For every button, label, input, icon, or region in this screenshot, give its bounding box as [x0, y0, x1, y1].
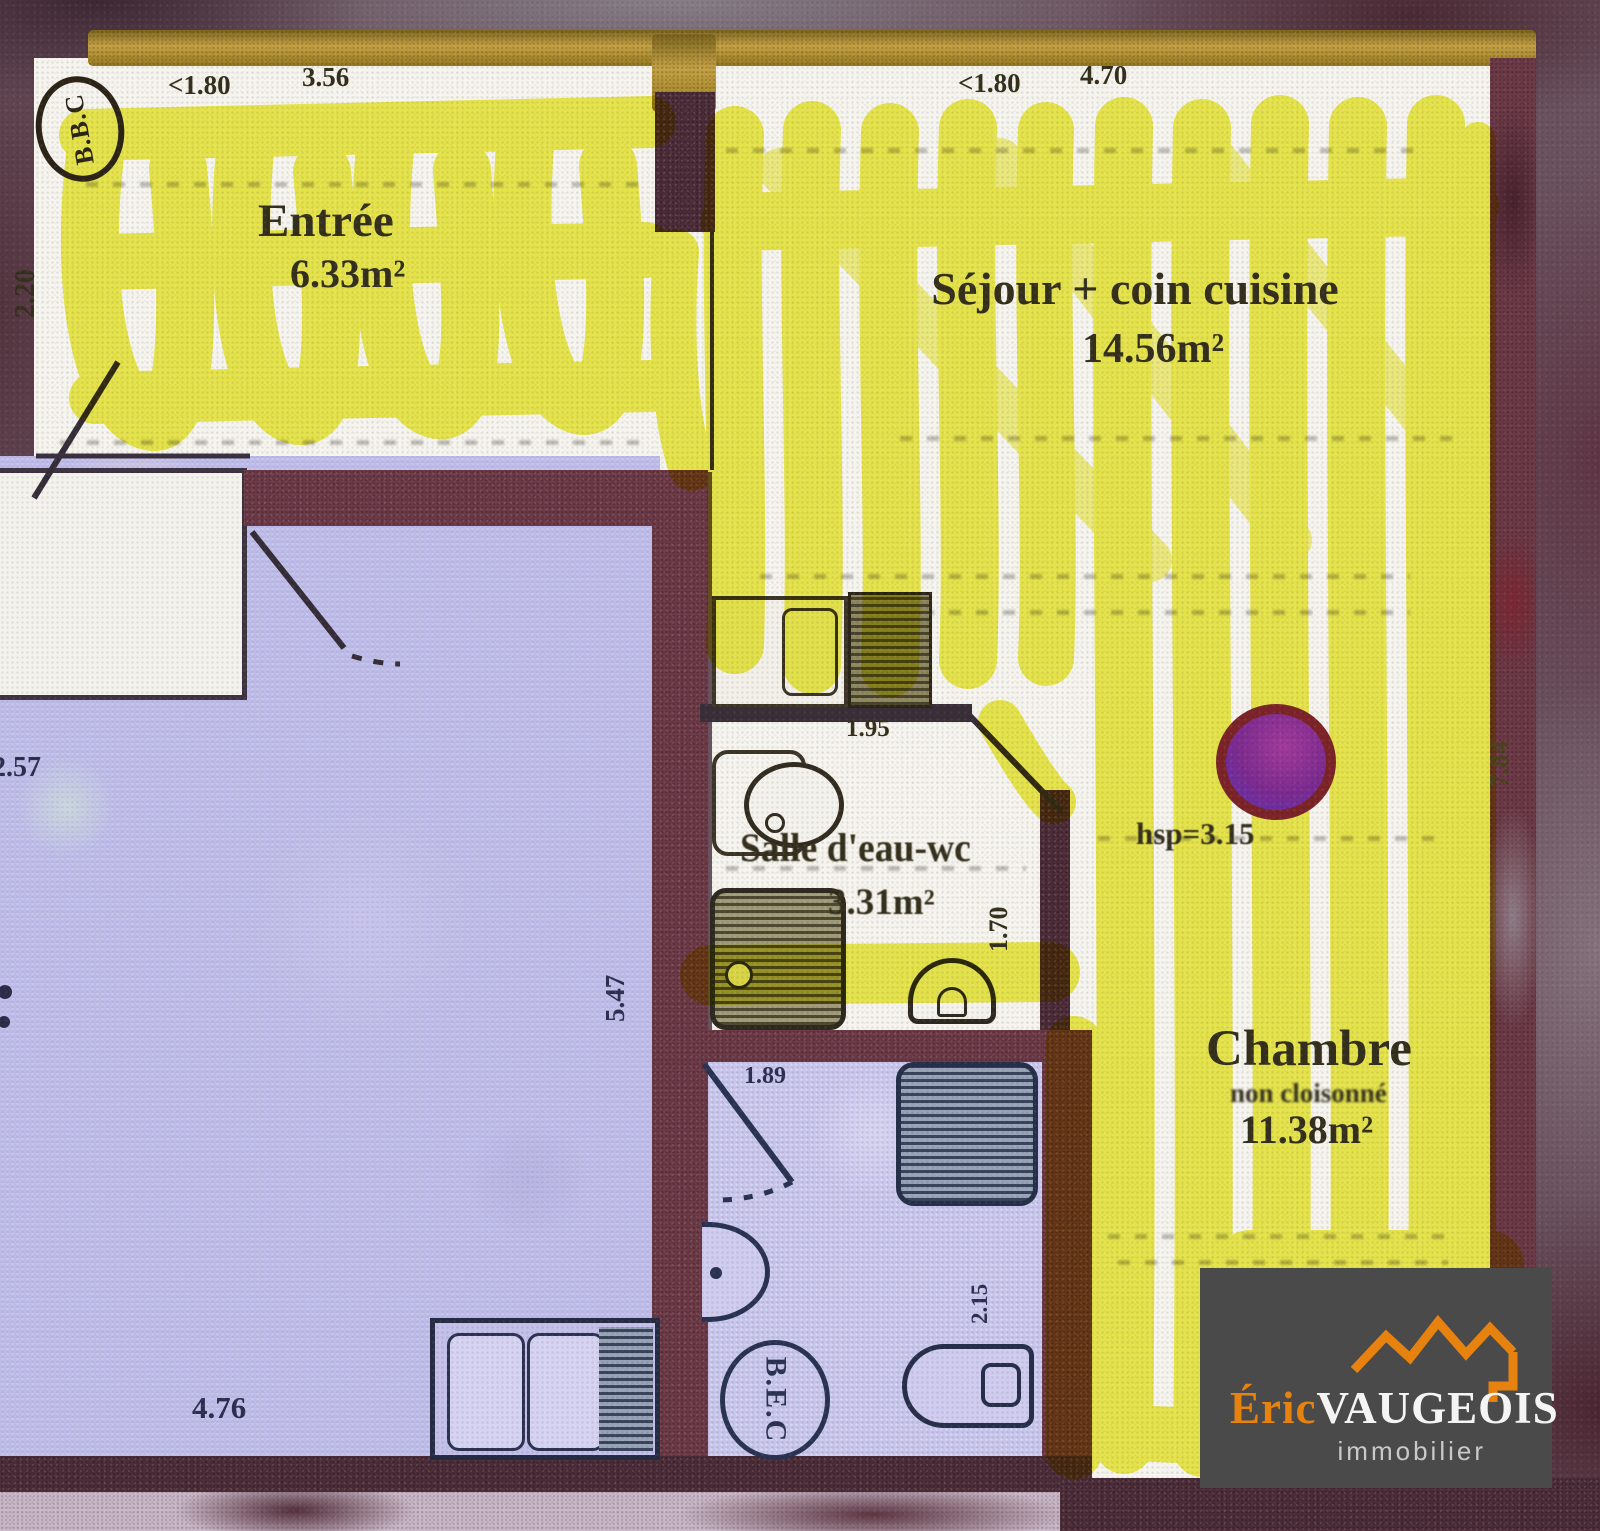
wardrobe-door-icon	[527, 1333, 605, 1451]
wall-bath2-right	[1042, 1030, 1092, 1490]
dim-salle-eau-width: 1.95	[846, 716, 890, 741]
note-chambre: non cloisonné	[1230, 1080, 1387, 1107]
bleed-row	[726, 148, 1426, 153]
area-chambre: 11.38m²	[1240, 1110, 1373, 1150]
dim-bath2-width: 1.89	[744, 1064, 786, 1088]
toilet2-tank-icon	[981, 1363, 1021, 1407]
area-salle-eau: 3.31m²	[828, 884, 935, 921]
dim-neighbor-inner: 5.47	[602, 975, 629, 1022]
kitchen-sink-unit-icon	[712, 596, 848, 708]
bleed-row	[1118, 1260, 1448, 1265]
room-neighbor-annex	[0, 468, 247, 700]
scan-bottom-strip	[0, 1490, 1092, 1531]
toilet2-icon	[902, 1344, 1034, 1428]
label-sejour: Séjour + coin cuisine	[900, 266, 1370, 312]
agency-logo: ÉricVAUGEOIS immobilier	[1200, 1268, 1552, 1488]
dim-entree-left: 2.20	[12, 269, 40, 318]
wall-entree-sejour	[655, 92, 715, 232]
label-entree: Entrée	[258, 198, 394, 245]
dim-bath2-right: 2.15	[968, 1284, 991, 1324]
label-chambre: Chambre	[1206, 1024, 1412, 1075]
agency-tagline: immobilier	[1338, 1436, 1486, 1467]
dim-sejour-door: <1.80	[958, 70, 1021, 97]
bleed-row	[1108, 1234, 1458, 1239]
agency-name-last: VAUGEOIS	[1316, 1383, 1558, 1433]
bleed-row	[900, 436, 1460, 441]
water-heater-label: B.E.C	[758, 1357, 792, 1444]
note-ceiling-height: hsp=3.15	[1136, 818, 1254, 849]
wall-bottom	[0, 1456, 1092, 1492]
kitchen-counter-icon	[848, 592, 932, 708]
shower-icon	[710, 888, 846, 1030]
dim-neighbor-left: 2.57	[0, 754, 41, 782]
label-salle-eau: Salle d'eau-wc	[740, 828, 971, 868]
dim-neighbor-bottom: 4.76	[192, 1392, 246, 1423]
agency-name: ÉricVAUGEOIS	[1230, 1382, 1559, 1434]
wall-salle-eau-right	[1040, 790, 1070, 1034]
shower2-icon	[896, 1062, 1038, 1206]
dim-sejour-width: 4.70	[1080, 62, 1127, 89]
wall-vertical-main	[652, 470, 708, 1490]
water-heater-stamp: B.E.C	[720, 1340, 830, 1460]
top-wall	[88, 30, 1536, 66]
bleed-row	[760, 574, 1410, 579]
wardrobe-icon	[430, 1318, 660, 1460]
dim-entree-width: 3.56	[302, 64, 349, 91]
area-entree: 6.33m²	[290, 254, 405, 294]
kitchen-sink-bowl-icon	[782, 608, 838, 696]
wardrobe-shelf-icon	[599, 1327, 653, 1451]
passage-entree-sejour	[652, 228, 716, 472]
dim-chambre-right: 7.84	[1486, 741, 1513, 788]
area-sejour: 14.56m²	[1082, 328, 1224, 370]
floor-plan-scan: B.E.C	[0, 0, 1600, 1531]
wall-mid-horizontal	[652, 1030, 1092, 1062]
wall-neighbor-top	[244, 470, 704, 526]
room-dot-marker	[1216, 704, 1336, 820]
bleed-row	[86, 182, 646, 187]
shower-drain-icon	[725, 961, 753, 989]
toilet-bowl-icon	[937, 987, 967, 1017]
sink2-drain-icon	[710, 1267, 722, 1279]
dim-entree-door: <1.80	[168, 72, 231, 99]
agency-name-first: Éric	[1230, 1383, 1316, 1433]
bleed-row	[60, 440, 650, 445]
dim-salle-eau-depth: 1.70	[986, 907, 1012, 953]
wardrobe-door-icon	[447, 1333, 525, 1451]
bbc-stamp-label: B.B.C	[59, 91, 101, 167]
